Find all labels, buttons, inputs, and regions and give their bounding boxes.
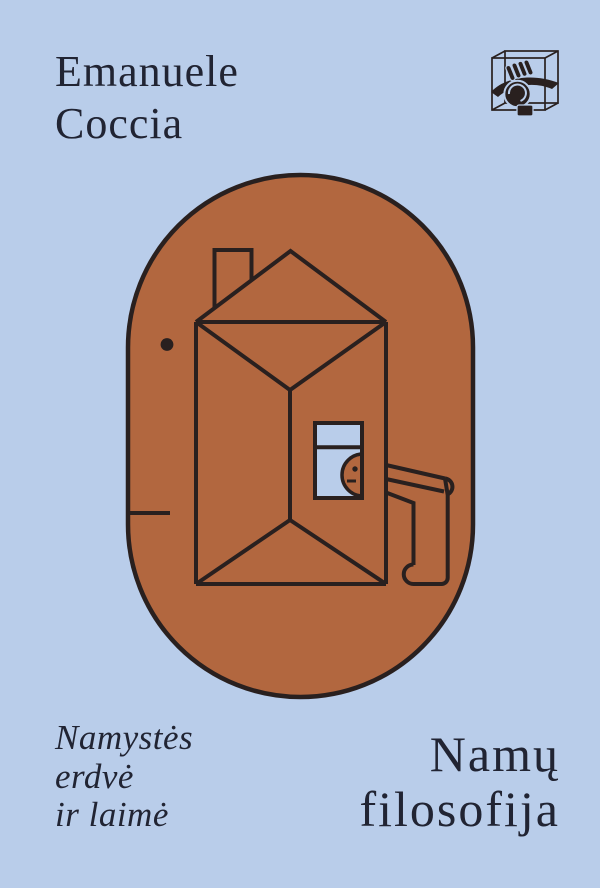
book-title: Namų filosofija [359, 727, 560, 837]
publisher-logo [489, 47, 561, 117]
title-line-2: filosofija [359, 782, 560, 837]
author-line-1: Emanuele [55, 46, 239, 98]
subtitle-line-1: Namystės [55, 719, 193, 758]
subtitle: Namystės erdvė ir laimė [55, 719, 193, 835]
face-features [352, 466, 357, 471]
subtitle-line-3: ir laimė [55, 796, 193, 835]
fist-wrist-tab [517, 105, 533, 116]
oval-blob [128, 175, 473, 697]
author-name: Emanuele Coccia [55, 46, 239, 150]
subtitle-line-2: erdvė [55, 758, 193, 797]
gutter-cap-chord [445, 479, 448, 495]
blob-dot [161, 338, 174, 351]
face-eye-dot [352, 466, 357, 471]
author-line-2: Coccia [55, 98, 239, 150]
title-line-1: Namų [359, 727, 560, 782]
book-cover: Emanuele Coccia Namystės erdvė ir laimė [0, 0, 600, 888]
